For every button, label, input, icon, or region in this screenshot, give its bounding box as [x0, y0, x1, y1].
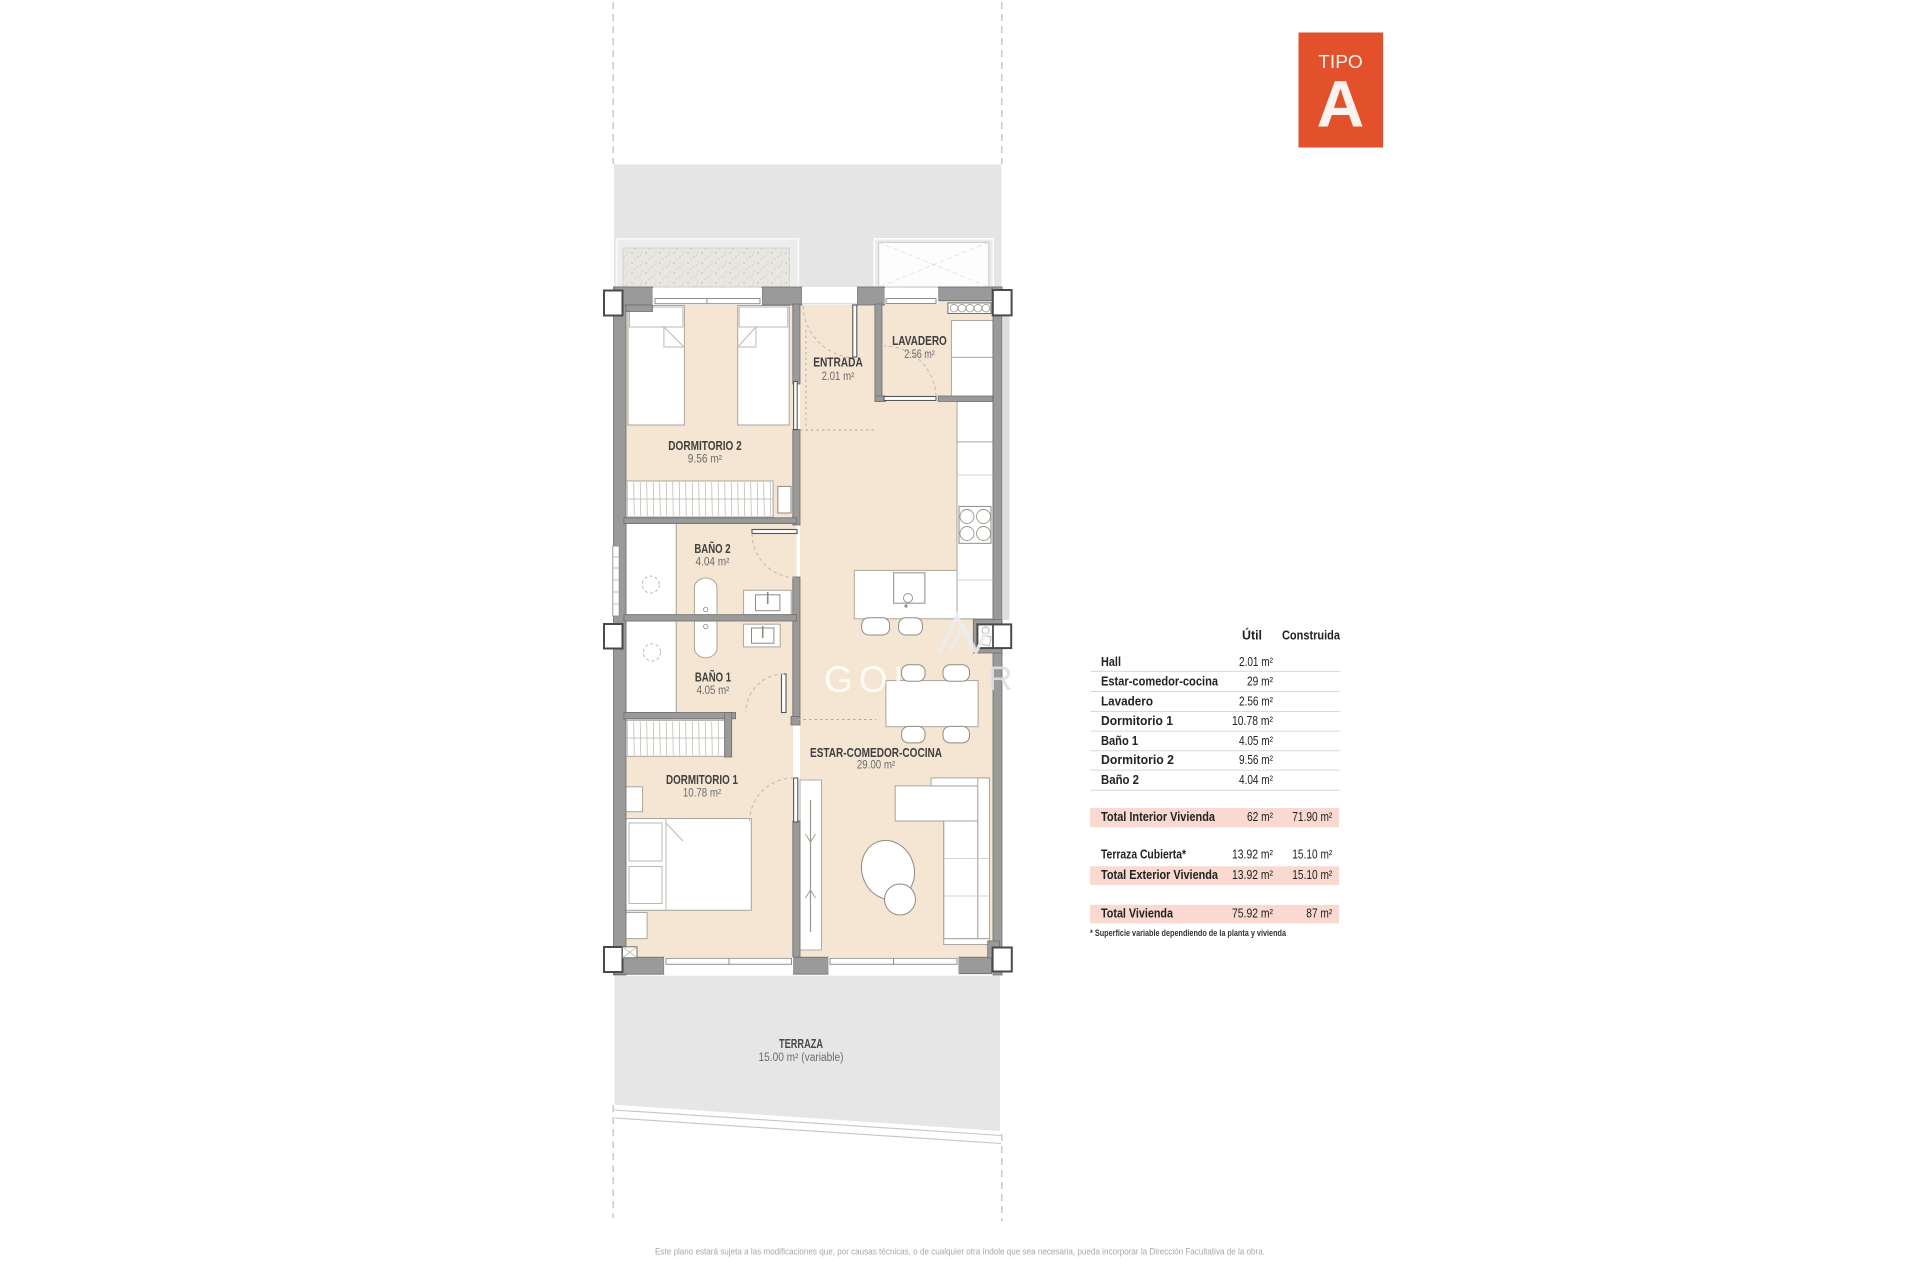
svg-text:Total Exterior Vivienda: Total Exterior Vivienda	[1101, 868, 1219, 882]
svg-text:Baño 2: Baño 2	[1101, 773, 1139, 787]
svg-text:15.10 m²: 15.10 m²	[1292, 868, 1332, 882]
svg-text:4.05 m²: 4.05 m²	[1239, 734, 1273, 748]
svg-text:Baño 1: Baño 1	[1101, 734, 1138, 748]
svg-text:BAÑO 2: BAÑO 2	[694, 541, 730, 556]
svg-text:15.10 m²: 15.10 m²	[1292, 848, 1332, 862]
svg-text:BAÑO 1: BAÑO 1	[695, 670, 731, 685]
svg-text:A: A	[1317, 67, 1365, 141]
svg-text:10.78 m²: 10.78 m²	[1232, 714, 1273, 728]
svg-text:GOL: GOL	[824, 659, 920, 700]
svg-text:DORMITORIO 2: DORMITORIO 2	[668, 439, 742, 453]
svg-text:15.00 m² (variable): 15.00 m² (variable)	[759, 1052, 844, 1064]
svg-text:75.92 m²: 75.92 m²	[1232, 906, 1273, 920]
svg-text:ENTRADA: ENTRADA	[813, 356, 863, 370]
svg-text:87 m²: 87 m²	[1306, 906, 1332, 920]
svg-text:9.56 m²: 9.56 m²	[688, 454, 723, 466]
svg-text:Dormitorio 1: Dormitorio 1	[1101, 714, 1173, 728]
svg-text:71.90 m²: 71.90 m²	[1292, 810, 1332, 824]
svg-text:10.78 m²: 10.78 m²	[683, 788, 721, 800]
svg-text:13.92 m²: 13.92 m²	[1232, 868, 1273, 882]
svg-text:29.00 m²: 29.00 m²	[857, 760, 895, 772]
svg-text:Útil: Útil	[1242, 628, 1262, 643]
svg-text:Dormitorio 2: Dormitorio 2	[1101, 753, 1174, 767]
svg-text:Hall: Hall	[1101, 655, 1121, 669]
svg-text:R: R	[988, 660, 1013, 698]
svg-text:4.04 m²: 4.04 m²	[1239, 773, 1273, 787]
svg-text:2.56 m²: 2.56 m²	[904, 349, 935, 361]
svg-text:Total Vivienda: Total Vivienda	[1101, 906, 1174, 920]
svg-text:4.05 m²: 4.05 m²	[697, 685, 730, 697]
svg-text:Estar-comedor-cocina: Estar-comedor-cocina	[1101, 675, 1219, 689]
svg-text:ESTAR-COMEDOR-COCINA: ESTAR-COMEDOR-COCINA	[810, 746, 942, 760]
svg-text:TERRAZA: TERRAZA	[779, 1037, 823, 1051]
svg-text:Construida: Construida	[1282, 629, 1341, 643]
svg-text:2.56 m²: 2.56 m²	[1239, 695, 1273, 709]
svg-text:Terraza Cubierta*: Terraza Cubierta*	[1101, 848, 1186, 862]
svg-text:LAVADERO: LAVADERO	[892, 334, 947, 348]
svg-text:Total Interior Vivienda: Total Interior Vivienda	[1101, 810, 1216, 824]
svg-text:DORMITORIO 1: DORMITORIO 1	[666, 773, 738, 787]
svg-text:9.56 m²: 9.56 m²	[1239, 753, 1273, 767]
svg-text:2.01 m²: 2.01 m²	[1239, 655, 1273, 669]
svg-text:62 m²: 62 m²	[1247, 810, 1273, 824]
svg-text:13.92 m²: 13.92 m²	[1232, 848, 1273, 862]
svg-text:2.01 m²: 2.01 m²	[822, 371, 855, 383]
svg-text:* Superficie variable dependie: * Superficie variable dependiendo de la …	[1090, 928, 1287, 938]
svg-text:Lavadero: Lavadero	[1101, 695, 1153, 709]
svg-text:29 m²: 29 m²	[1247, 675, 1273, 689]
svg-text:Este plano estará sujeta a las: Este plano estará sujeta a las modificac…	[655, 1247, 1265, 1258]
svg-text:4.04 m²: 4.04 m²	[696, 557, 730, 569]
